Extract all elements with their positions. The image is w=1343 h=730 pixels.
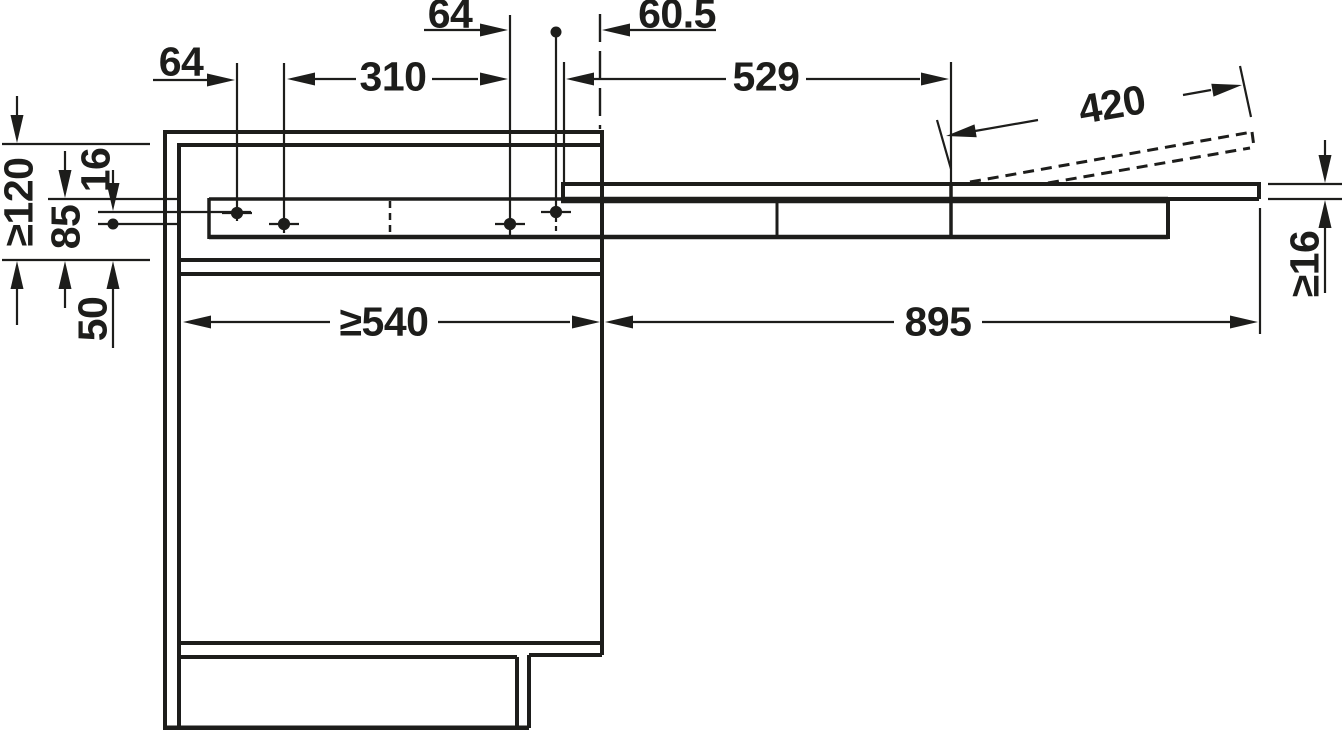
dim-label-top-thickness: ≥16 — [1285, 231, 1326, 298]
cabinet-left-panel — [165, 130, 179, 729]
ext-flap-tick-left — [937, 120, 951, 169]
technical-drawing-canvas: 64 310 64 60.5 529 420 ≥540 895 ≥120 16 … — [0, 0, 1343, 730]
dim-label-extension-length: 895 — [905, 302, 972, 343]
cabinet-bottom-panel — [181, 643, 602, 655]
dim-label-hole-pitch-rear: 64 — [159, 42, 204, 83]
flap-tilted-bottom — [1048, 148, 1250, 183]
flap-tilted-tip — [1252, 132, 1254, 147]
dim-label-cabinet-inner-depth: ≥540 — [340, 302, 429, 343]
datum-dot-left — [108, 219, 119, 230]
dim-label-front-edge-offset: 60.5 — [638, 0, 716, 35]
cabinet-plinth — [181, 655, 529, 728]
ext-flap-tick-right — [1240, 66, 1251, 117]
dim-label-clearance-height: ≥120 — [0, 158, 40, 247]
flap-tilted-top — [970, 132, 1252, 182]
cabinet-fixed-shelf — [181, 260, 602, 274]
dim-label-hole-pitch-front: 64 — [428, 0, 473, 35]
pullout-table — [209, 182, 1259, 239]
dim-label-shelf-offset: 50 — [73, 297, 114, 342]
folded-flap-dashed — [970, 132, 1254, 183]
dim-label-hole-row-offset: 16 — [76, 148, 117, 193]
dim-label-flap-length: 420 — [1076, 79, 1149, 131]
dim-label-hole-pitch-middle: 310 — [360, 57, 427, 98]
mounting-holes — [222, 207, 571, 229]
cabinet-outline — [163, 130, 604, 729]
datum-dot-top — [551, 27, 562, 38]
tabletop-slab — [563, 182, 1259, 199]
dim-label-slide-section-length: 529 — [733, 57, 800, 98]
dim-label-fitting-height: 85 — [46, 205, 87, 250]
cabinet-top-panel — [163, 132, 604, 145]
